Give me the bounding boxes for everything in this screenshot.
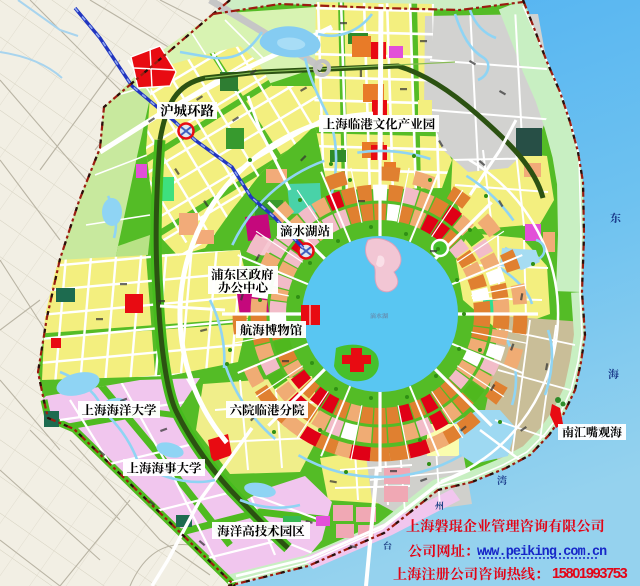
svg-text:15801993753: 15801993753 xyxy=(552,566,628,582)
